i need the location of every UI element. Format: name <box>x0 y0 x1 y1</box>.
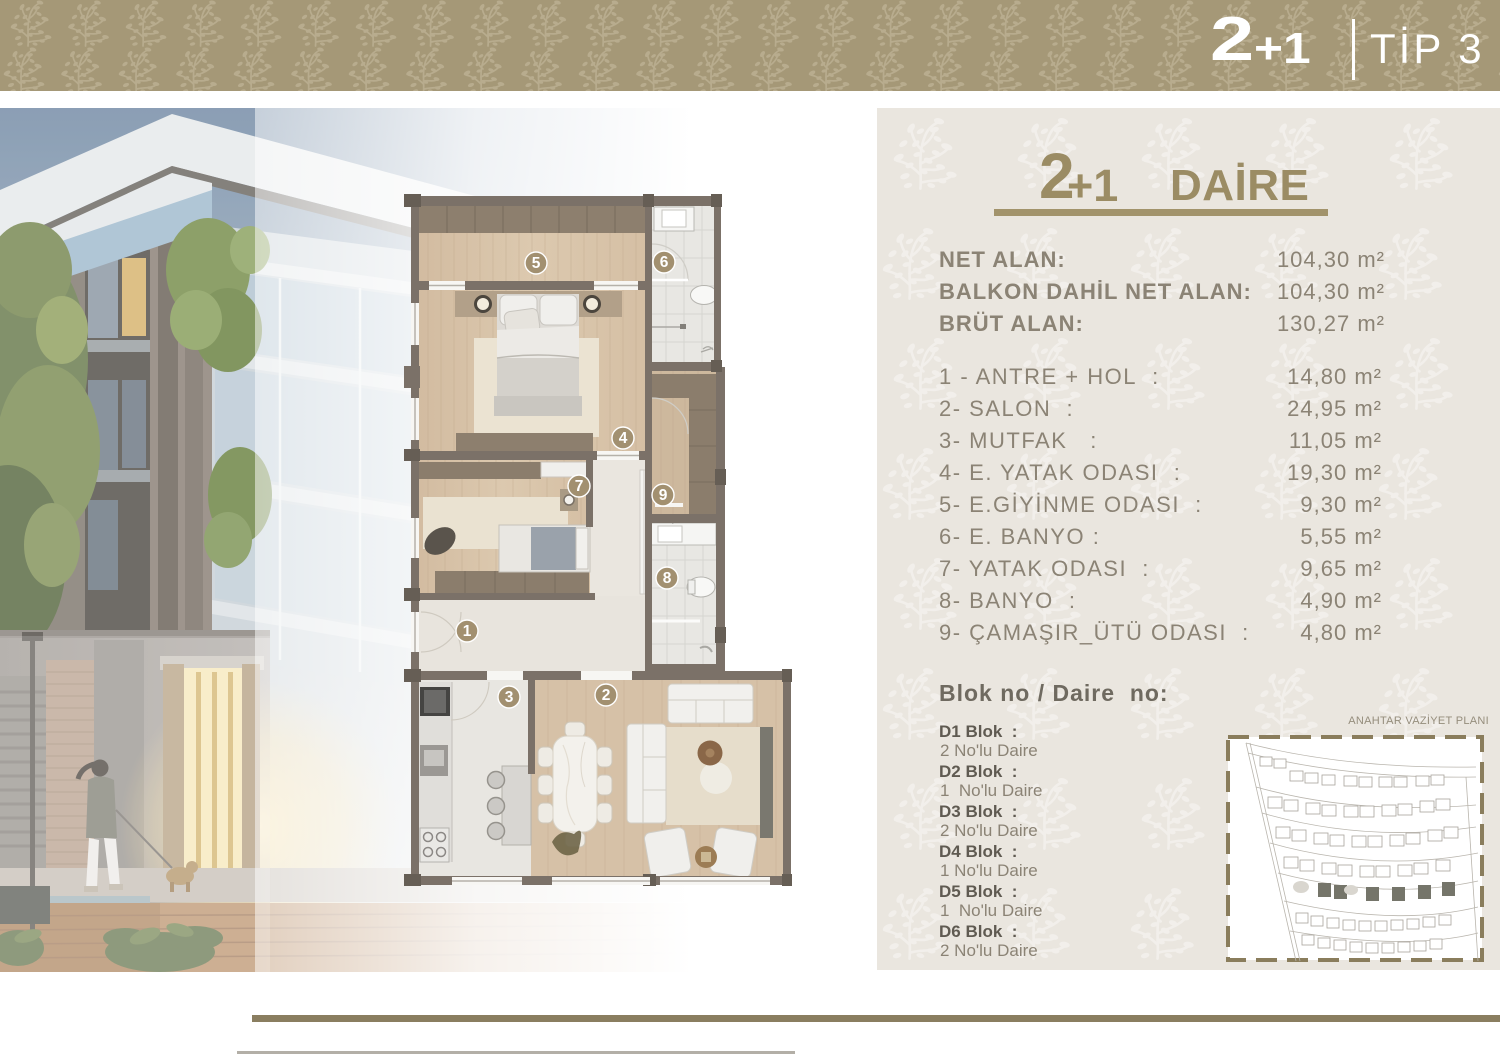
svg-text:2: 2 <box>602 687 611 704</box>
svg-text:8: 8 <box>663 570 672 587</box>
svg-text:9: 9 <box>659 487 668 504</box>
svg-text:7: 7 <box>575 478 584 495</box>
svg-text:1: 1 <box>463 623 472 640</box>
svg-text:5: 5 <box>532 255 541 272</box>
svg-text:6: 6 <box>660 254 669 271</box>
svg-text:4: 4 <box>619 430 628 447</box>
svg-text:3: 3 <box>505 689 514 706</box>
